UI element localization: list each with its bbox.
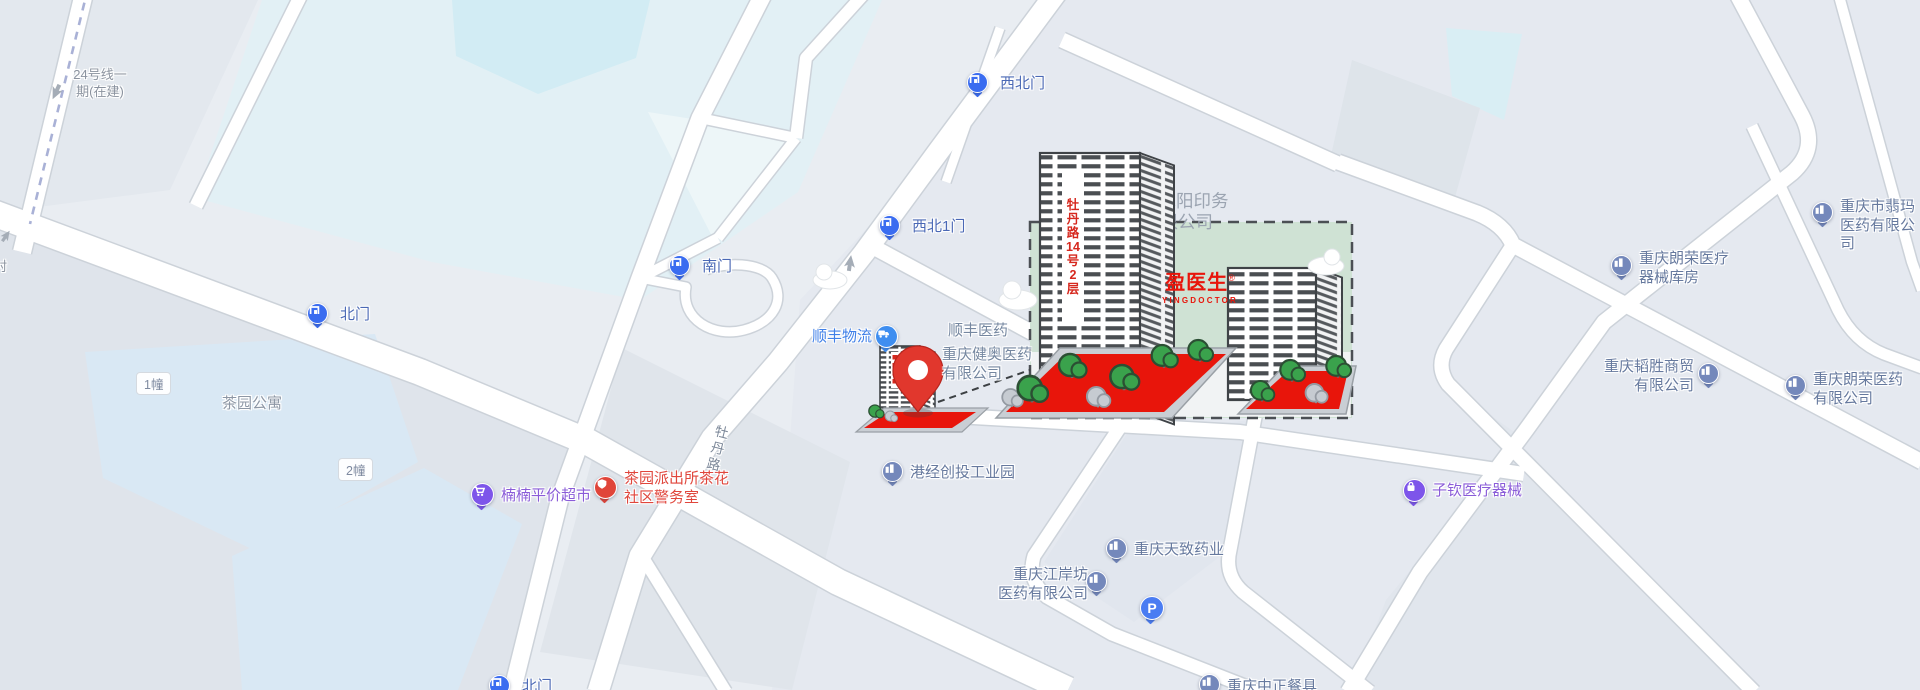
shopping-cart-icon bbox=[472, 484, 486, 498]
gate-marker-north-bottom[interactable] bbox=[489, 675, 510, 690]
poi-tianzhi-label[interactable]: 重庆天致药业 bbox=[1134, 541, 1224, 560]
parking-marker[interactable]: P bbox=[1140, 596, 1161, 623]
building-address-sign: 牡 丹 路 14 号 2 层 bbox=[1062, 198, 1084, 296]
gate-marker-north[interactable] bbox=[307, 303, 328, 327]
poi-sf-logistics-icon[interactable] bbox=[875, 325, 896, 351]
building-icon bbox=[1699, 364, 1712, 377]
poi-langrong-warehouse-icon[interactable] bbox=[1611, 255, 1632, 279]
building-icon bbox=[883, 462, 896, 475]
residential-name-label[interactable]: 茶园公寓 bbox=[222, 395, 282, 414]
poi-jianganfang-icon[interactable] bbox=[1086, 571, 1107, 595]
poi-industrial-park-icon[interactable] bbox=[882, 461, 903, 485]
gate-label-south[interactable]: 南门 bbox=[702, 258, 732, 277]
brand-name-en: YINGDOCTOR bbox=[1146, 296, 1254, 305]
police-badge-icon bbox=[595, 477, 609, 491]
poi-supermarket-icon[interactable] bbox=[471, 483, 492, 509]
gate-marker-northwest[interactable] bbox=[967, 72, 988, 96]
map-canvas[interactable]: 重庆旭阳印务 有限公司 bbox=[0, 0, 1920, 690]
handbag-icon bbox=[1404, 480, 1418, 494]
building-badge-2: 2幢 bbox=[338, 458, 373, 481]
poi-taosheng-label[interactable]: 重庆韬胜商贸 有限公司 bbox=[1604, 358, 1694, 395]
subway-line-label: 24号线一 期(在建) bbox=[60, 66, 140, 100]
poi-taosheng-icon[interactable] bbox=[1698, 363, 1719, 387]
poi-zhongzheng-label[interactable]: 重庆中正餐具 bbox=[1227, 678, 1317, 690]
building-icon bbox=[1087, 572, 1100, 585]
poi-supermarket-label[interactable]: 楠楠平价超市 bbox=[501, 487, 591, 506]
building-icon bbox=[1612, 256, 1625, 269]
building-badge-1: 1幢 bbox=[136, 372, 171, 395]
poi-jianao-label[interactable]: 重庆健奥医药 有限公司 bbox=[942, 346, 1032, 383]
poi-police-icon[interactable] bbox=[594, 476, 615, 502]
poi-industrial-park-label[interactable]: 港经创投工业园 bbox=[910, 464, 1015, 483]
registered-mark: ® bbox=[1228, 273, 1235, 283]
gate-icon bbox=[490, 676, 503, 689]
gate-icon bbox=[308, 304, 321, 317]
gate-label-north-bottom[interactable]: 北门 bbox=[522, 678, 552, 690]
map-base-layer bbox=[0, 0, 1920, 690]
building-icon bbox=[1200, 675, 1213, 688]
gate-icon bbox=[880, 216, 893, 229]
building-icon bbox=[1786, 376, 1799, 389]
building-icon bbox=[1107, 539, 1120, 552]
poi-zhongzheng-icon[interactable] bbox=[1199, 674, 1220, 690]
poi-jianganfang-label[interactable]: 重庆江岸坊 医药有限公司 bbox=[998, 566, 1088, 603]
building-icon bbox=[1813, 203, 1826, 216]
brand-name: 盈医生 bbox=[1165, 272, 1228, 294]
brand-logo: 盈医生® YINGDOCTOR bbox=[1146, 266, 1254, 305]
poi-langrong-warehouse-label[interactable]: 重庆朗荣医疗 器械库房 bbox=[1639, 250, 1729, 287]
gate-marker-south[interactable] bbox=[669, 255, 690, 279]
partial-village-label: 村 bbox=[0, 258, 7, 275]
poi-ziqin-label[interactable]: 子钦医疗器械 bbox=[1432, 482, 1522, 501]
gate-marker-northwest1[interactable] bbox=[879, 215, 900, 239]
gate-label-northwest[interactable]: 西北门 bbox=[1000, 75, 1045, 94]
gate-label-north[interactable]: 北门 bbox=[340, 306, 370, 325]
poi-langrong-pharma-label[interactable]: 重庆朗荣医药 有限公司 bbox=[1813, 371, 1903, 408]
gate-icon bbox=[968, 73, 981, 86]
poi-feima-icon[interactable] bbox=[1812, 202, 1833, 226]
poi-ziqin-icon[interactable] bbox=[1403, 479, 1424, 505]
poi-feima-label[interactable]: 重庆市翡玛 医药有限公司 bbox=[1840, 198, 1920, 254]
poi-police-label[interactable]: 茶园派出所茶花 社区警务室 bbox=[624, 470, 729, 507]
poi-tianzhi-icon[interactable] bbox=[1106, 538, 1127, 562]
poi-langrong-pharma-icon[interactable] bbox=[1785, 375, 1806, 399]
gate-label-northwest1[interactable]: 西北1门 bbox=[912, 218, 965, 237]
gate-icon bbox=[670, 256, 683, 269]
poi-sf-pharma-label[interactable]: 顺丰医药 bbox=[948, 322, 1008, 341]
poi-sf-logistics-label[interactable]: 顺丰物流 bbox=[812, 328, 872, 347]
parking-icon: P bbox=[1147, 600, 1156, 616]
truck-icon bbox=[876, 326, 891, 341]
